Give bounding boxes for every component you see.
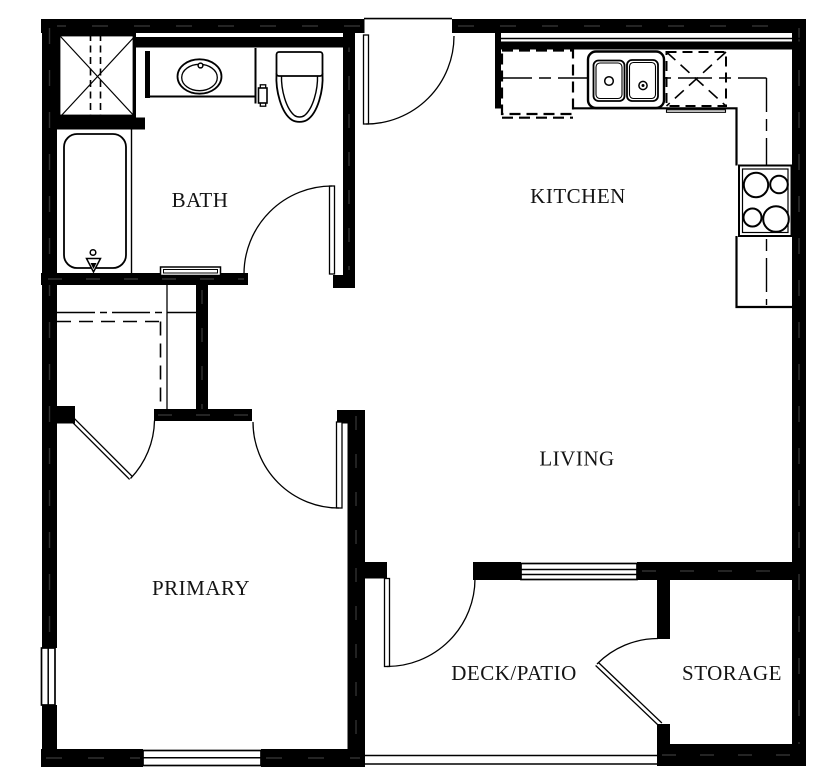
svg-text:KITCHEN: KITCHEN <box>530 184 626 208</box>
svg-text:STORAGE: STORAGE <box>682 661 782 685</box>
svg-text:DECK/PATIO: DECK/PATIO <box>451 661 577 685</box>
svg-text:BATH: BATH <box>172 188 229 212</box>
svg-text:PRIMARY: PRIMARY <box>152 576 250 600</box>
svg-text:LIVING: LIVING <box>539 447 614 471</box>
